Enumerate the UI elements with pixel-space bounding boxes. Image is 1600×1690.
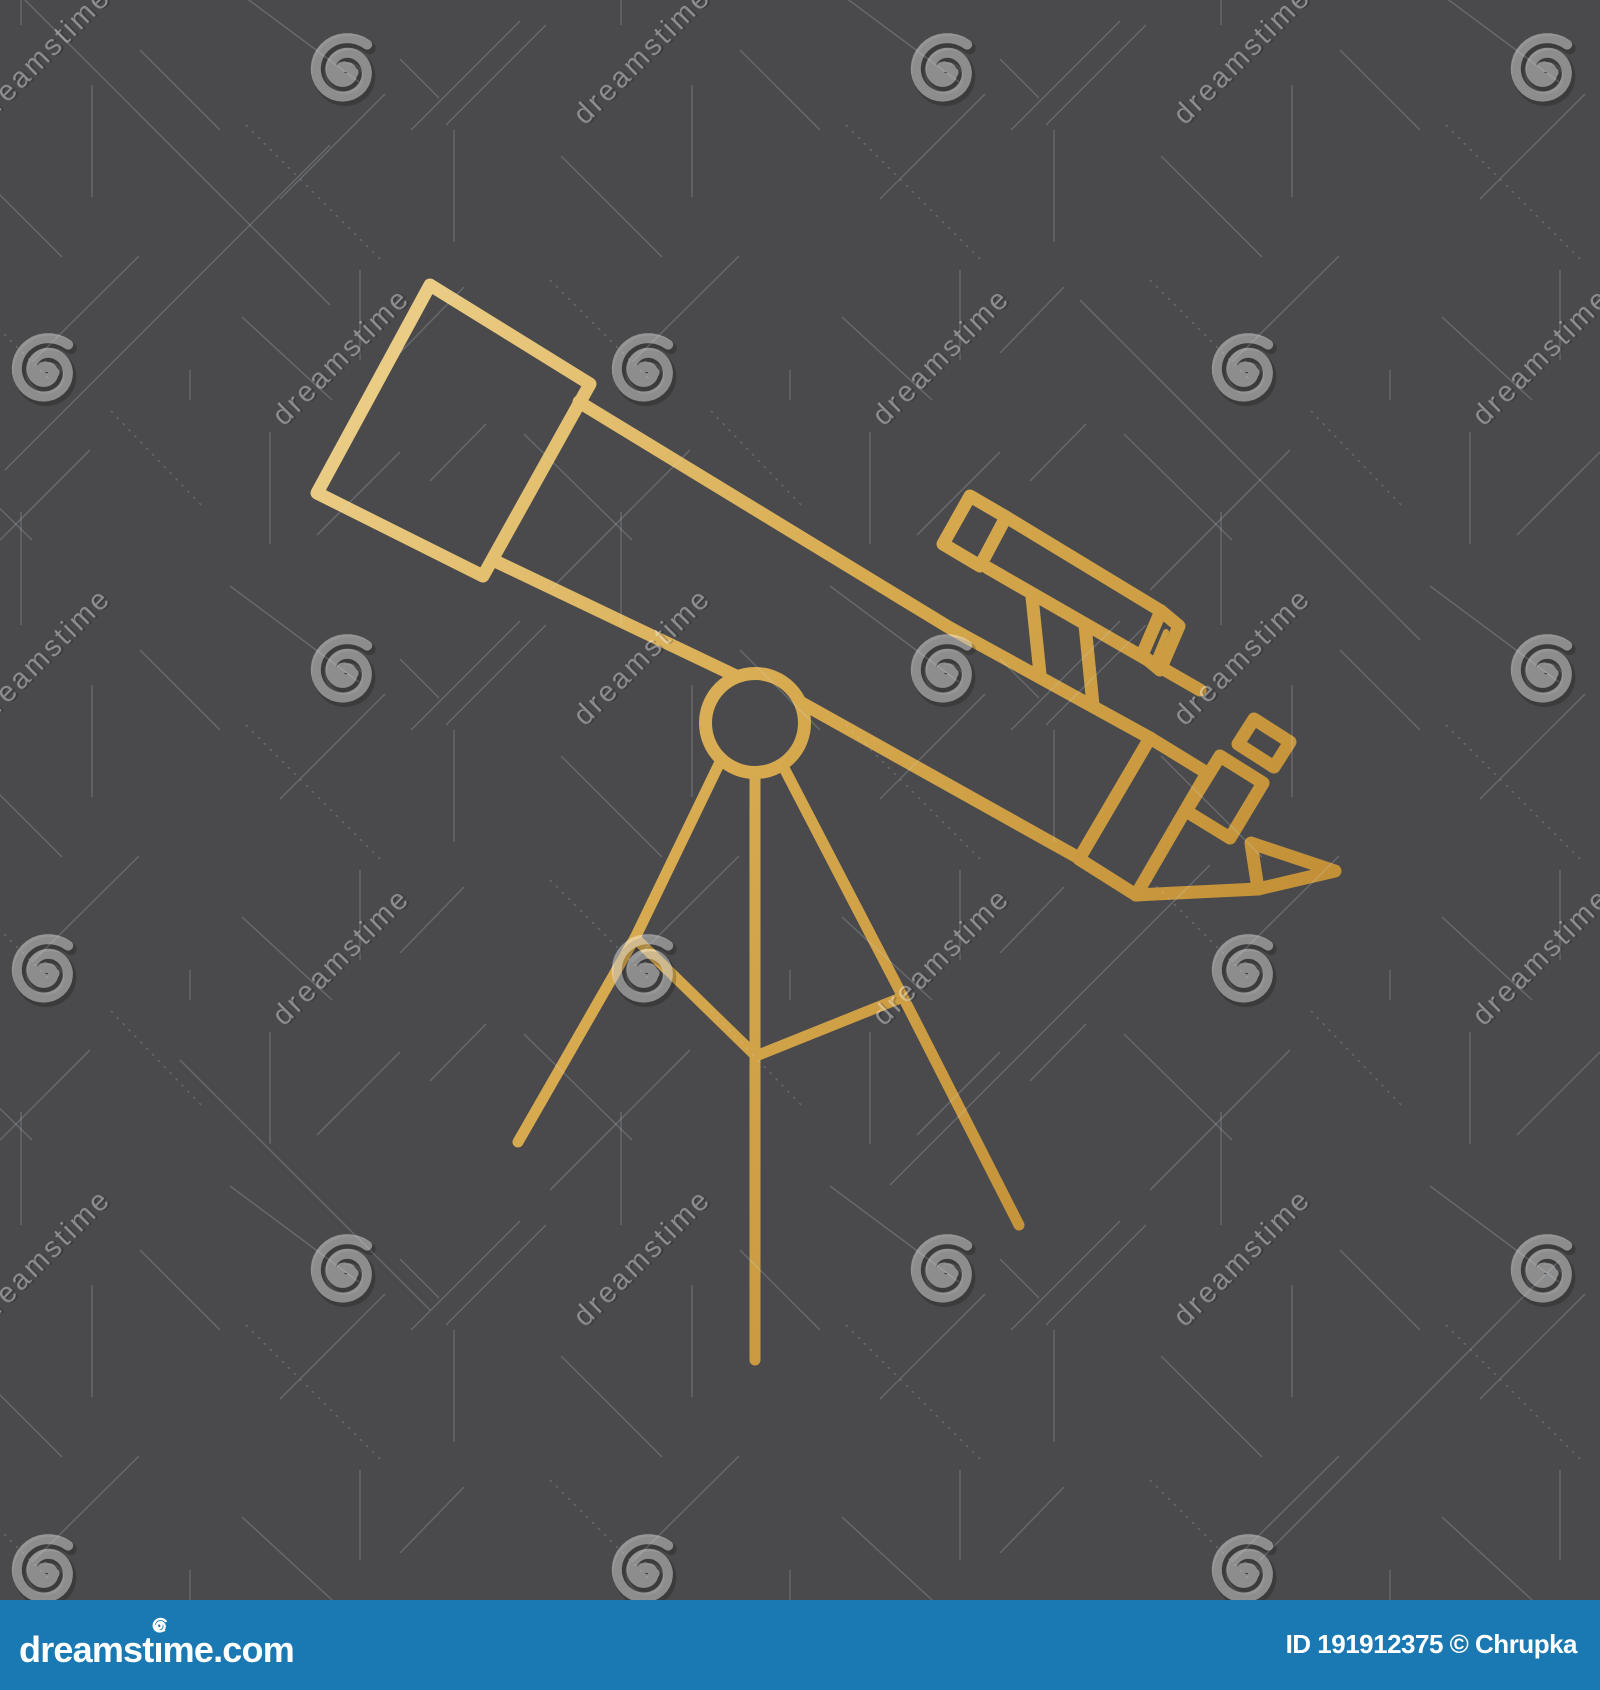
svg-text:dreamstıme.com: dreamstıme.com xyxy=(19,1629,294,1670)
svg-text:ID 191912375 © Chrupka: ID 191912375 © Chrupka xyxy=(1286,1629,1578,1659)
